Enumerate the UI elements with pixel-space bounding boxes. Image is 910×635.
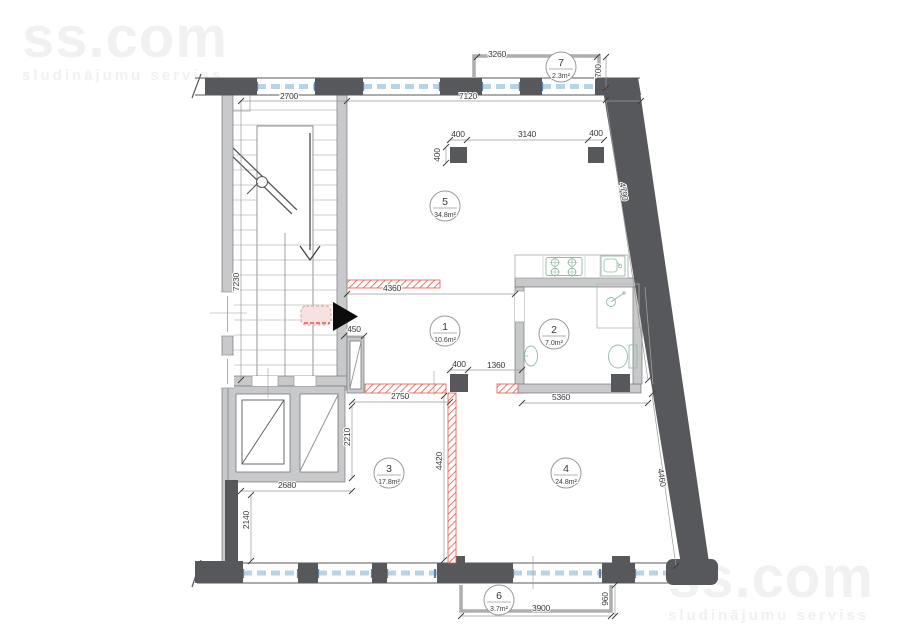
dim-2140: 2140: [241, 510, 251, 529]
dim-4790: 4790: [617, 182, 630, 202]
kitchen: [515, 255, 628, 278]
svg-text:10.6m²: 10.6m²: [434, 337, 456, 344]
dim-2210: 2210: [342, 427, 352, 446]
dim-2750: 2750: [391, 391, 410, 401]
room-label-4: 4 24.8m²: [551, 458, 581, 488]
bathroom-pier: [611, 374, 630, 392]
bottom-pier-1: [195, 561, 243, 583]
dim-450: 450: [347, 324, 361, 334]
floor-plan-drawing: 3260 700 2700 7120 400 3140 400 400 4790…: [0, 0, 910, 635]
column-center: [450, 374, 468, 392]
room-label-1: 1 10.6m²: [430, 316, 460, 346]
dim-4360: 4360: [383, 283, 402, 293]
room-label-5: 5 34.8m²: [430, 191, 460, 221]
bottom-right-corner: [666, 559, 718, 585]
svg-text:24.8m²: 24.8m²: [555, 479, 577, 486]
lobby-door-opening-2: [294, 376, 316, 386]
left-lower-wall: [225, 480, 238, 564]
dim-5360: 5360: [552, 392, 571, 402]
entrance-door-symbol: [301, 306, 331, 325]
bottom-pier-5-notch: [612, 556, 630, 564]
svg-text:4: 4: [563, 463, 569, 475]
svg-text:6: 6: [496, 590, 502, 602]
dim-3140: 3140: [518, 129, 537, 139]
dim-700: 700: [593, 64, 603, 78]
svg-text:5: 5: [442, 196, 448, 208]
stairwell-right-wall: [337, 78, 347, 390]
column-left: [450, 147, 467, 163]
room-label-7: 7 2.3m²: [546, 52, 576, 82]
room-label-2: 2 7.0m²: [539, 319, 569, 349]
column-right: [588, 147, 604, 163]
balcony-top-railing: [474, 56, 599, 78]
top-pier-2: [315, 78, 363, 95]
dim-3260: 3260: [488, 49, 507, 59]
dim-2680: 2680: [278, 480, 297, 490]
dim-7230: 7230: [231, 272, 241, 291]
svg-text:2.3m²: 2.3m²: [552, 73, 571, 80]
bottom-pier-3: [372, 563, 387, 583]
svg-text:7.0m²: 7.0m²: [545, 340, 564, 347]
room-label-3: 3 17.8m²: [374, 458, 404, 488]
demo-wall-mid-right: [497, 384, 518, 393]
dim-7120: 7120: [459, 91, 478, 101]
svg-text:3: 3: [386, 463, 392, 475]
dim-1360: 1360: [487, 360, 506, 370]
svg-text:1: 1: [442, 321, 448, 333]
dim-400-col-side: 400: [432, 148, 442, 162]
dim-960: 960: [600, 592, 610, 606]
svg-text:3.7m²: 3.7m²: [490, 606, 509, 613]
room-label-6: 6 3.7m²: [484, 585, 514, 615]
svg-text:17.8m²: 17.8m²: [378, 479, 400, 486]
dim-3900: 3900: [532, 603, 551, 613]
bathroom-wall-top: [515, 278, 646, 287]
floorplan-canvas: ss.com sludinājumu serviss ss.com sludin…: [0, 0, 910, 635]
wall-break-marks: [192, 74, 201, 587]
stair-break-circle: [257, 177, 268, 188]
demo-wall-vertical: [448, 393, 456, 563]
svg-text:34.8m²: 34.8m²: [434, 212, 456, 219]
stairwell: [226, 95, 337, 382]
lobby-wall: [233, 376, 347, 386]
top-pier-1: [205, 78, 257, 95]
dim-400-col-right: 400: [589, 128, 603, 138]
toilet-icon: [609, 345, 628, 368]
lobby-door-opening-1: [252, 376, 278, 386]
dim-4420: 4420: [434, 451, 444, 470]
bottom-pier-4: [437, 563, 513, 583]
room-labels: 1 10.6m² 2 7.0m² 3 17.8m² 4 24.8m²: [374, 52, 581, 615]
angled-right-wall: [601, 78, 712, 583]
dim-2700: 2700: [280, 91, 299, 101]
bottom-pier-2: [298, 563, 318, 583]
dim-400-col-left: 400: [451, 129, 465, 139]
top-pier-4: [520, 78, 542, 95]
dim-400-col-mid: 400: [452, 359, 466, 369]
bathroom-door-opening: [515, 291, 524, 322]
svg-text:7: 7: [558, 57, 564, 69]
svg-text:2: 2: [551, 324, 557, 336]
bottom-pier-5: [602, 563, 635, 583]
dim-4460: 4460: [656, 468, 669, 488]
